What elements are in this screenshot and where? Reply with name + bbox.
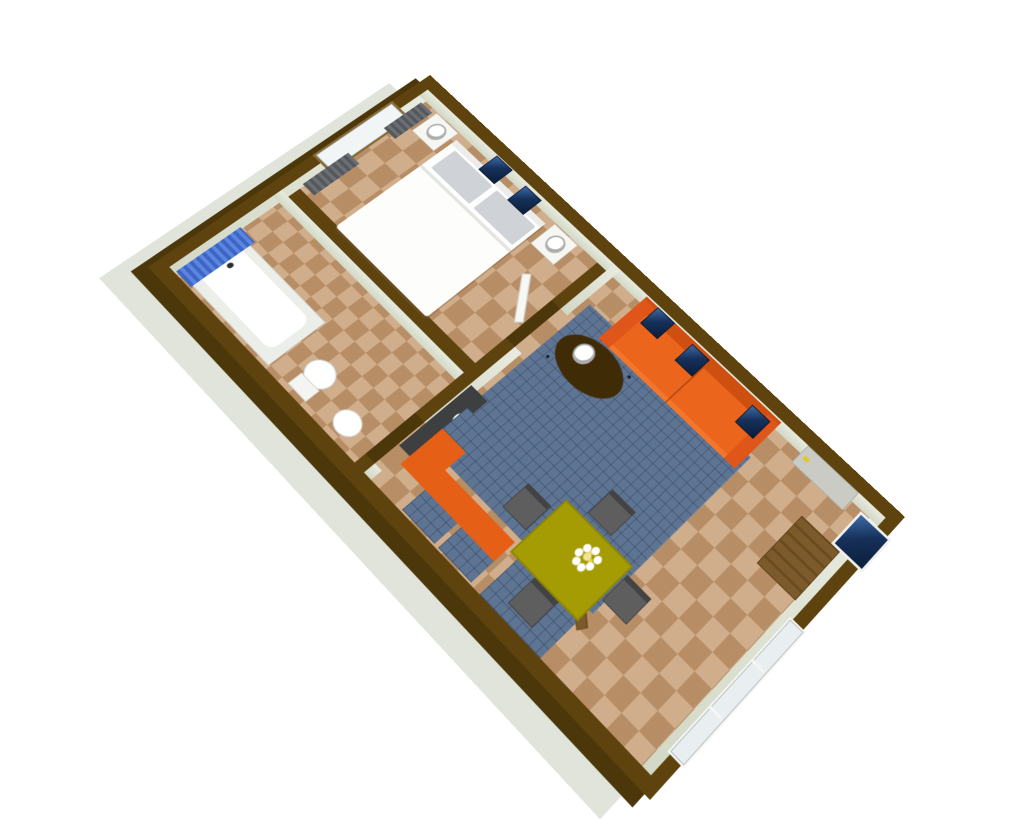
window-mullion <box>752 660 765 673</box>
window-mullion <box>709 706 722 719</box>
floorplan-render <box>0 0 1024 834</box>
door-handle <box>802 455 810 463</box>
apartment-plan <box>148 75 905 800</box>
